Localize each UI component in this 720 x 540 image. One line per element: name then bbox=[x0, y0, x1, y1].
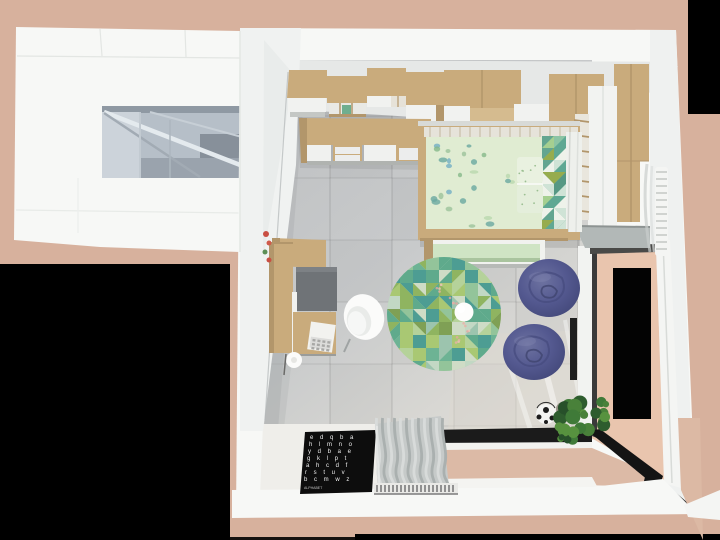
svg-text:b c m w z: b c m w z bbox=[304, 477, 352, 483]
svg-text:r s t u v: r s t u v bbox=[305, 470, 347, 476]
svg-text:a h c d f: a h c d f bbox=[306, 463, 350, 469]
svg-text:e d q b a: e d q b a bbox=[310, 435, 356, 441]
svg-text:y d b a e: y d b a e bbox=[308, 449, 354, 455]
svg-text:h l m n o: h l m n o bbox=[309, 442, 355, 448]
svg-text:g k l p t: g k l p t bbox=[307, 456, 349, 462]
svg-text:ALPHABET: ALPHABET bbox=[304, 486, 323, 490]
